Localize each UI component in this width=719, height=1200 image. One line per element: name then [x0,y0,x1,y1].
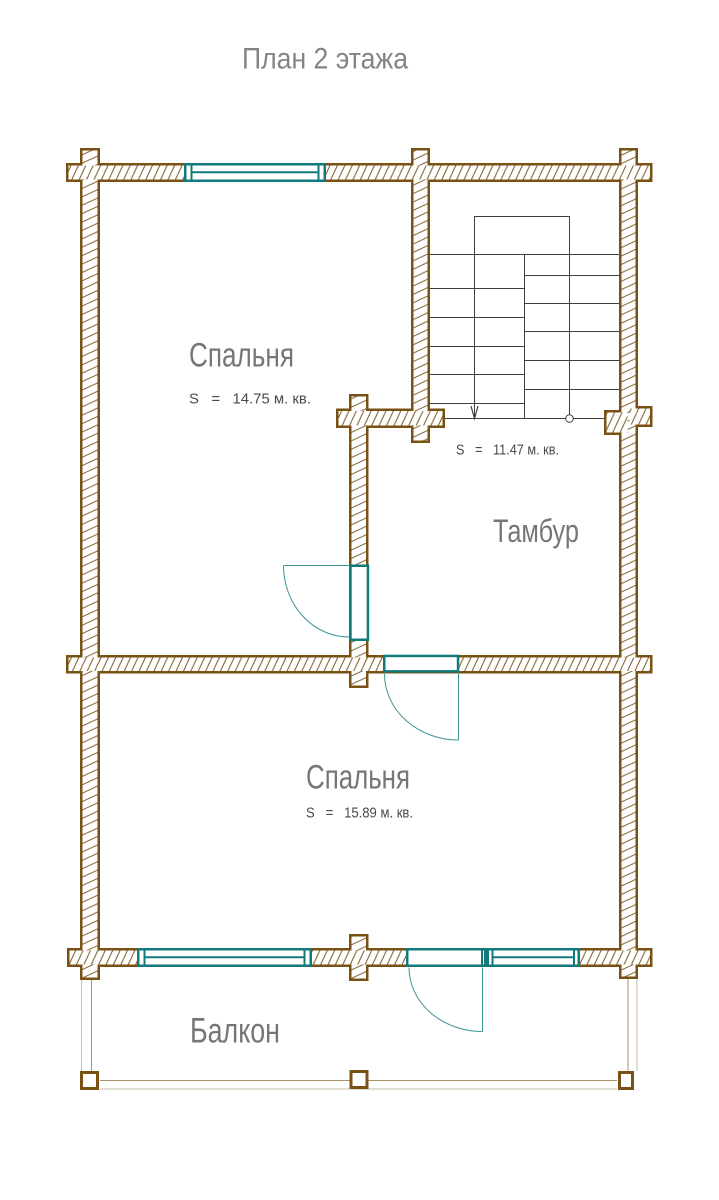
svg-text:Балкон: Балкон [190,1012,280,1051]
svg-text:Спальня: Спальня [306,759,410,797]
svg-text:Спальня: Спальня [189,337,294,375]
svg-text:План 2 этажа: План 2 этажа [242,43,408,76]
svg-text:S = 15.89 м. кв.: S = 15.89 м. кв. [306,805,413,822]
svg-text:S = 14.75 м. кв.: S = 14.75 м. кв. [189,391,311,408]
svg-text:S = 11.47 м. кв.: S = 11.47 м. кв. [456,442,559,459]
svg-text:Тамбур: Тамбур [493,513,579,549]
